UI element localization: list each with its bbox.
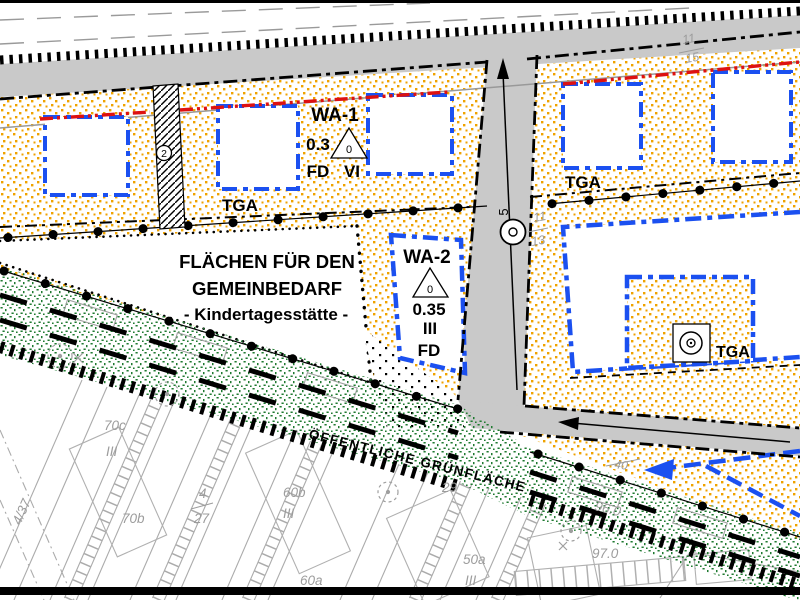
baugrenze-west-1 [45,117,128,195]
wa1-triangle-value: 0 [346,144,352,156]
wa1-storeys: VI [344,162,360,181]
tga-label-east-north: TGA [565,173,601,192]
wa2-roof: FD [418,341,441,360]
road-circle-inner [509,228,517,236]
gemeinbedarf-labels: FLÄCHEN FÜR DEN GEMEINBEDARF - Kindertag… [179,251,355,324]
wa2-triangle-value: 0 [427,284,433,296]
house-number: 15 [684,50,700,66]
boundary-marker-number: 2 [161,148,167,160]
parcel-4-27-top: 4 [199,486,207,501]
parcel-50a-storeys: III [465,573,477,588]
bebauungsplan-map: 2 5 11 13 11 15 WA-1 0.3 0 FD VI WA-2 0 … [0,0,800,600]
gemeinbedarf-line2: GEMEINBEDARF [192,278,342,299]
wa1-name: WA-1 [311,105,359,126]
wa2-storeys: III [423,319,437,338]
baugrenze-east-2 [713,72,791,162]
elevation-97: 97.0 [592,546,619,561]
parcel-60b-storeys: III [283,506,295,521]
tga-label-east-south: TGA [716,344,750,361]
elevation-40: 40 [614,457,629,473]
map-frame-bottom [0,587,800,595]
parcel-29: 29 [441,480,458,495]
gemeinbedarf-line3: - Kindertagesstätte - [184,305,348,324]
wa1-grz: 0.3 [306,135,330,154]
gemeinbedarf-line1: FLÄCHEN FÜR DEN [179,251,355,272]
wa2-grz: 0.35 [412,300,445,319]
baugrenze-east-1 [563,84,641,168]
parcel-4-27-bottom: 27 [193,511,210,526]
parcel-60b: 60b [283,485,306,500]
map-frame-top [0,0,800,3]
tga-label-west: TGA [222,196,258,215]
parcel-50a: 50a [463,552,486,567]
tga-entrance-symbol [673,324,710,362]
wa2-name: WA-2 [403,247,451,268]
parcel-70b: 70b [122,511,145,526]
baugrenze-west-2 [218,106,298,189]
street-number: 5 [496,208,511,215]
house-number: 13 [530,233,546,249]
wa1-roof: FD [307,162,330,181]
house-number: 11 [681,31,696,47]
parcel-70c: 70c [104,418,126,433]
house-number: 11 [532,209,547,225]
parcel-70c-storeys: III [106,444,118,459]
parcel-60a: 60a [300,573,323,588]
baugrenze-west-3 [368,95,452,174]
